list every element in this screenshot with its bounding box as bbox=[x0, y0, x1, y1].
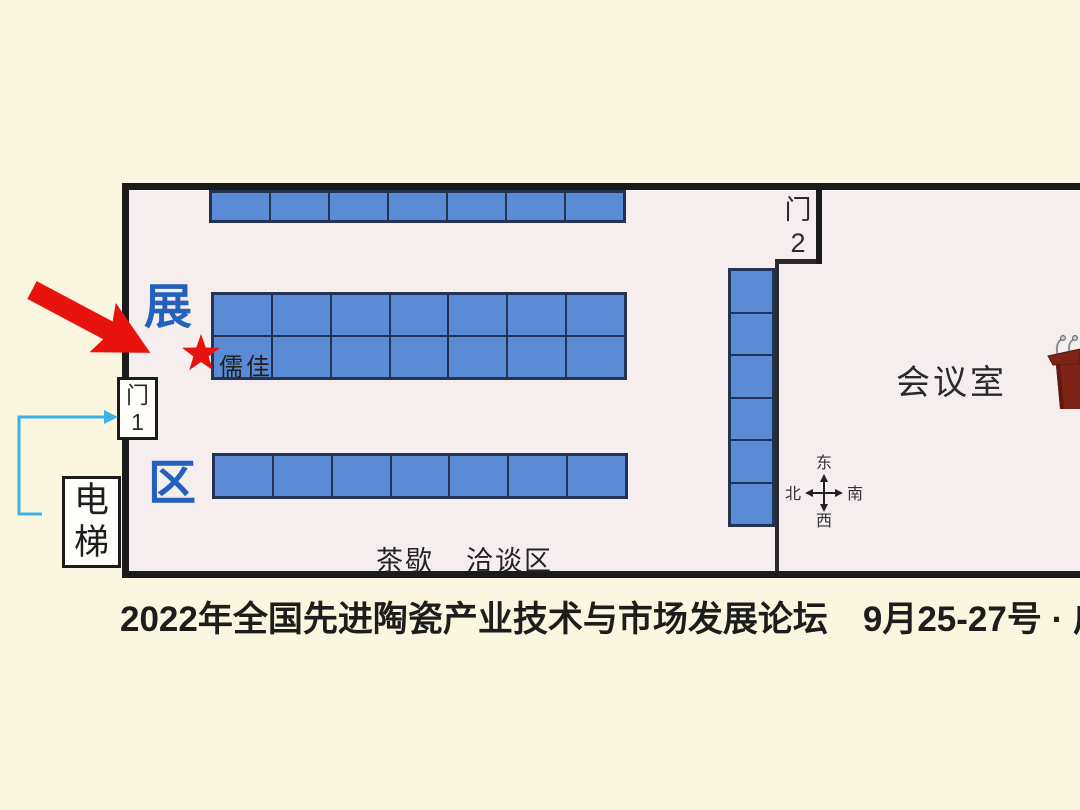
booth-cell bbox=[508, 455, 567, 497]
booth-cell bbox=[390, 294, 449, 336]
booth-grid-bottom-row bbox=[212, 453, 628, 499]
wall-top bbox=[122, 183, 1080, 190]
booth-grid-middle-block bbox=[211, 292, 627, 380]
booth-cell bbox=[332, 455, 391, 497]
booth-cell bbox=[566, 336, 625, 378]
booth-cell bbox=[506, 192, 565, 221]
elevator-route-arrow bbox=[8, 406, 123, 524]
door-1-char: 门 bbox=[126, 382, 149, 409]
zone-label-area: 区 bbox=[148, 460, 196, 508]
door-1-number: 1 bbox=[131, 409, 144, 436]
booth-cell bbox=[730, 313, 773, 356]
booth-cell bbox=[272, 294, 331, 336]
compass-north-label: 北 bbox=[785, 485, 801, 503]
booth-cell bbox=[272, 336, 331, 378]
door-2-char: 门 bbox=[785, 194, 812, 227]
compass-east-label: 东 bbox=[816, 454, 832, 472]
booth-cell bbox=[566, 294, 625, 336]
door-2-number: 2 bbox=[790, 227, 805, 260]
booth-cell bbox=[447, 192, 506, 221]
booth-cell bbox=[448, 336, 507, 378]
negotiation-area-label: 洽谈区 bbox=[466, 539, 553, 578]
booth-cell bbox=[730, 483, 773, 526]
booth-cell bbox=[507, 336, 566, 378]
highlight-arrow-icon bbox=[18, 272, 168, 372]
booth-cell bbox=[214, 455, 273, 497]
partition-wall bbox=[775, 261, 779, 571]
podium-icon bbox=[1044, 332, 1080, 410]
booth-grid-door2-column bbox=[728, 268, 775, 527]
meeting-room-label: 会议室 bbox=[896, 355, 1007, 404]
booth-cell bbox=[567, 455, 626, 497]
tea-break-label: 茶歇 bbox=[376, 539, 434, 578]
booth-cell bbox=[273, 455, 332, 497]
wall-bottom bbox=[122, 571, 1080, 578]
compass-rose: 东 西 北 南 bbox=[780, 452, 868, 532]
booth-cell bbox=[565, 192, 624, 221]
booth-cell bbox=[388, 192, 447, 221]
booth-cell bbox=[507, 294, 566, 336]
booth-cell bbox=[270, 192, 329, 221]
booth-star-icon bbox=[177, 330, 225, 378]
door-1-box: 门 1 bbox=[117, 377, 158, 440]
booth-cell bbox=[331, 294, 390, 336]
booth-cell bbox=[730, 270, 773, 313]
booth-cell bbox=[730, 398, 773, 441]
booth-cell bbox=[449, 455, 508, 497]
highlighted-booth-label: 儒佳 bbox=[219, 347, 273, 382]
door-2-label: 门 2 bbox=[778, 192, 818, 262]
booth-cell bbox=[448, 294, 507, 336]
booth-cell bbox=[211, 192, 270, 221]
booth-cell bbox=[331, 336, 390, 378]
elevator-char-2: 梯 bbox=[74, 522, 109, 564]
booth-cell bbox=[730, 440, 773, 483]
booth-cell bbox=[730, 355, 773, 398]
booth-grid-top-row bbox=[209, 190, 626, 223]
booth-cell bbox=[391, 455, 450, 497]
compass-south-label: 南 bbox=[847, 485, 863, 503]
compass-west-label: 西 bbox=[816, 513, 832, 530]
booth-cell bbox=[390, 336, 449, 378]
booth-cell bbox=[329, 192, 388, 221]
event-caption: 2022年全国先进陶瓷产业技术与市场发展论坛 9月25-27号 · 广 bbox=[120, 591, 1080, 642]
